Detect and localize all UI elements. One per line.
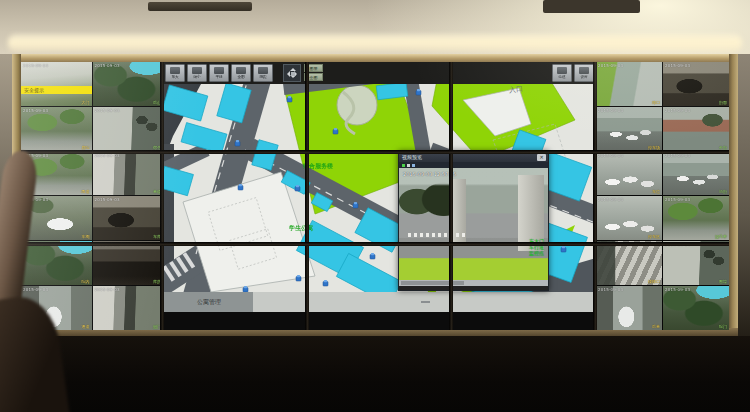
monitor-bezel-vertical [449,62,453,330]
camera-feed[interactable]: 2015-09-03路口 [596,62,662,106]
camera-feed[interactable]: 2015-09-03院内 [21,241,92,285]
camera-feed[interactable]: 2015-09-03通道 [21,286,92,330]
road-label: 入口 [509,85,524,95]
gate-fence [408,233,468,237]
gear-icon [579,67,589,74]
map-label: 学生公寓 [289,224,313,232]
ceiling-vent [543,0,640,13]
live-video-popup[interactable]: 视频预览 ✕ 2015-09-03 12:57:55 东大门 车行道 [398,151,549,291]
camera-feed[interactable]: 2015-09-03甬道 [21,152,92,196]
zoom-in-icon [170,67,180,74]
camera-feed[interactable]: 2015-09-03后山 [93,62,164,106]
dpad-center-icon [291,72,295,76]
camera-feed[interactable]: 2015-09-03停车场 [596,107,662,151]
monitor-bezel-horizontal [21,150,729,154]
app-bottom-strip [163,312,596,330]
videowall-frame-right [729,54,738,336]
floor-shadow [0,336,750,412]
camera-feed[interactable]: 2015-09-03侧门 [93,286,164,330]
camera-feed[interactable]: 2015-09-03宿舍 [93,107,164,151]
status-dot-icon [402,164,405,167]
toolbar-zoom-in-button[interactable]: 放大 [165,64,185,82]
toolbar-measure-button[interactable]: 测距 [253,64,273,82]
measure-icon [258,67,268,74]
cove-light [8,34,742,52]
gis-map-application: 放大 缩小 平移 全图 测距 图层 全图 轮巡 设置 图层 比例 [163,62,596,330]
arrow-left-icon [284,71,290,77]
camera-grid-left: 2015-09-03 安全提示 大门 2015-09-03后山 2015-09-… [21,62,163,330]
camera-feed[interactable]: 2015-09-03外街 [663,107,729,151]
monitor-bezel-vertical [305,62,309,330]
ceiling-vent [148,2,252,11]
toolbar-patrol-button[interactable]: 轮巡 [552,64,572,82]
status-dot-icon [412,164,415,167]
camera-feed[interactable]: 2015-09-03巷道 [93,152,164,196]
camera-feed[interactable]: 2015-09-03车库 [93,196,164,240]
toolbar-full-extent-button[interactable]: 全图 [231,64,251,82]
camera-feed[interactable]: 2015-09-03停车区 [596,196,662,240]
map-status-bar: 公寓管理 [163,292,596,312]
map-pan-dpad[interactable] [283,64,301,82]
camera-feed[interactable]: 2015-09-03围墙 [663,241,729,285]
camera-feed[interactable]: 2015-09-03街面 [663,62,729,106]
video-osd-label: 东大门 车行道 监控点 [529,238,544,256]
alert-banner: 安全提示 [21,86,92,94]
scrollbar-thumb[interactable] [401,281,464,285]
control-room-scene: 2015-09-03 安全提示 大门 2015-09-03后山 2015-09-… [0,0,750,412]
camera-feed[interactable]: 2015-09-03后巷 [596,286,662,330]
monitor-bezel-vertical [160,62,164,330]
status-tick [421,301,430,303]
camera-feed[interactable]: 2015-09-03车棚 [21,196,92,240]
popup-title: 视频预览 [402,154,422,160]
toolbar-settings-button[interactable]: 设置 [574,64,594,82]
status-dot-icon [407,164,410,167]
full-extent-icon [236,67,246,74]
monitor-bezel-horizontal [21,242,729,246]
pan-icon [214,67,224,74]
popup-scrollbar[interactable] [399,280,548,286]
patrol-icon [557,67,567,74]
videowall-screens: 2015-09-03 安全提示 大门 2015-09-03后山 2015-09-… [21,62,729,330]
camera-feed[interactable]: 2015-09-03楼梯口 [596,241,662,285]
status-text: 公寓管理 [197,298,221,307]
toolbar-zoom-out-button[interactable]: 缩小 [187,64,207,82]
camera-feed[interactable]: 2015-09-03 安全提示 大门 [21,62,92,106]
camera-feed[interactable]: 2015-09-03库房 [93,241,164,285]
monitor-bezel-vertical [593,62,597,330]
camera-feed[interactable]: 2015-09-03庭院 [21,107,92,151]
zoom-out-icon [192,67,202,74]
map-toolbar: 放大 缩小 平移 全图 测距 图层 全图 轮巡 设置 [163,62,596,84]
camera-feed[interactable]: 2015-09-03沿街 [663,152,729,196]
toolbar-pan-button[interactable]: 平移 [209,64,229,82]
popup-video-frame[interactable]: 2015-09-03 12:57:55 东大门 车行道 监控点 [399,168,548,280]
camera-feed[interactable]: 2015-09-03院门 [663,286,729,330]
close-icon[interactable]: ✕ [537,154,546,161]
camera-feed[interactable]: 2015-09-03车位 [596,152,662,196]
camera-grid-right: 2015-09-03路口 2015-09-03街面 2015-09-03停车场 … [596,62,729,330]
camera-feed[interactable]: 2015-09-03绿化带 [663,196,729,240]
videowall-frame-left [12,54,21,336]
